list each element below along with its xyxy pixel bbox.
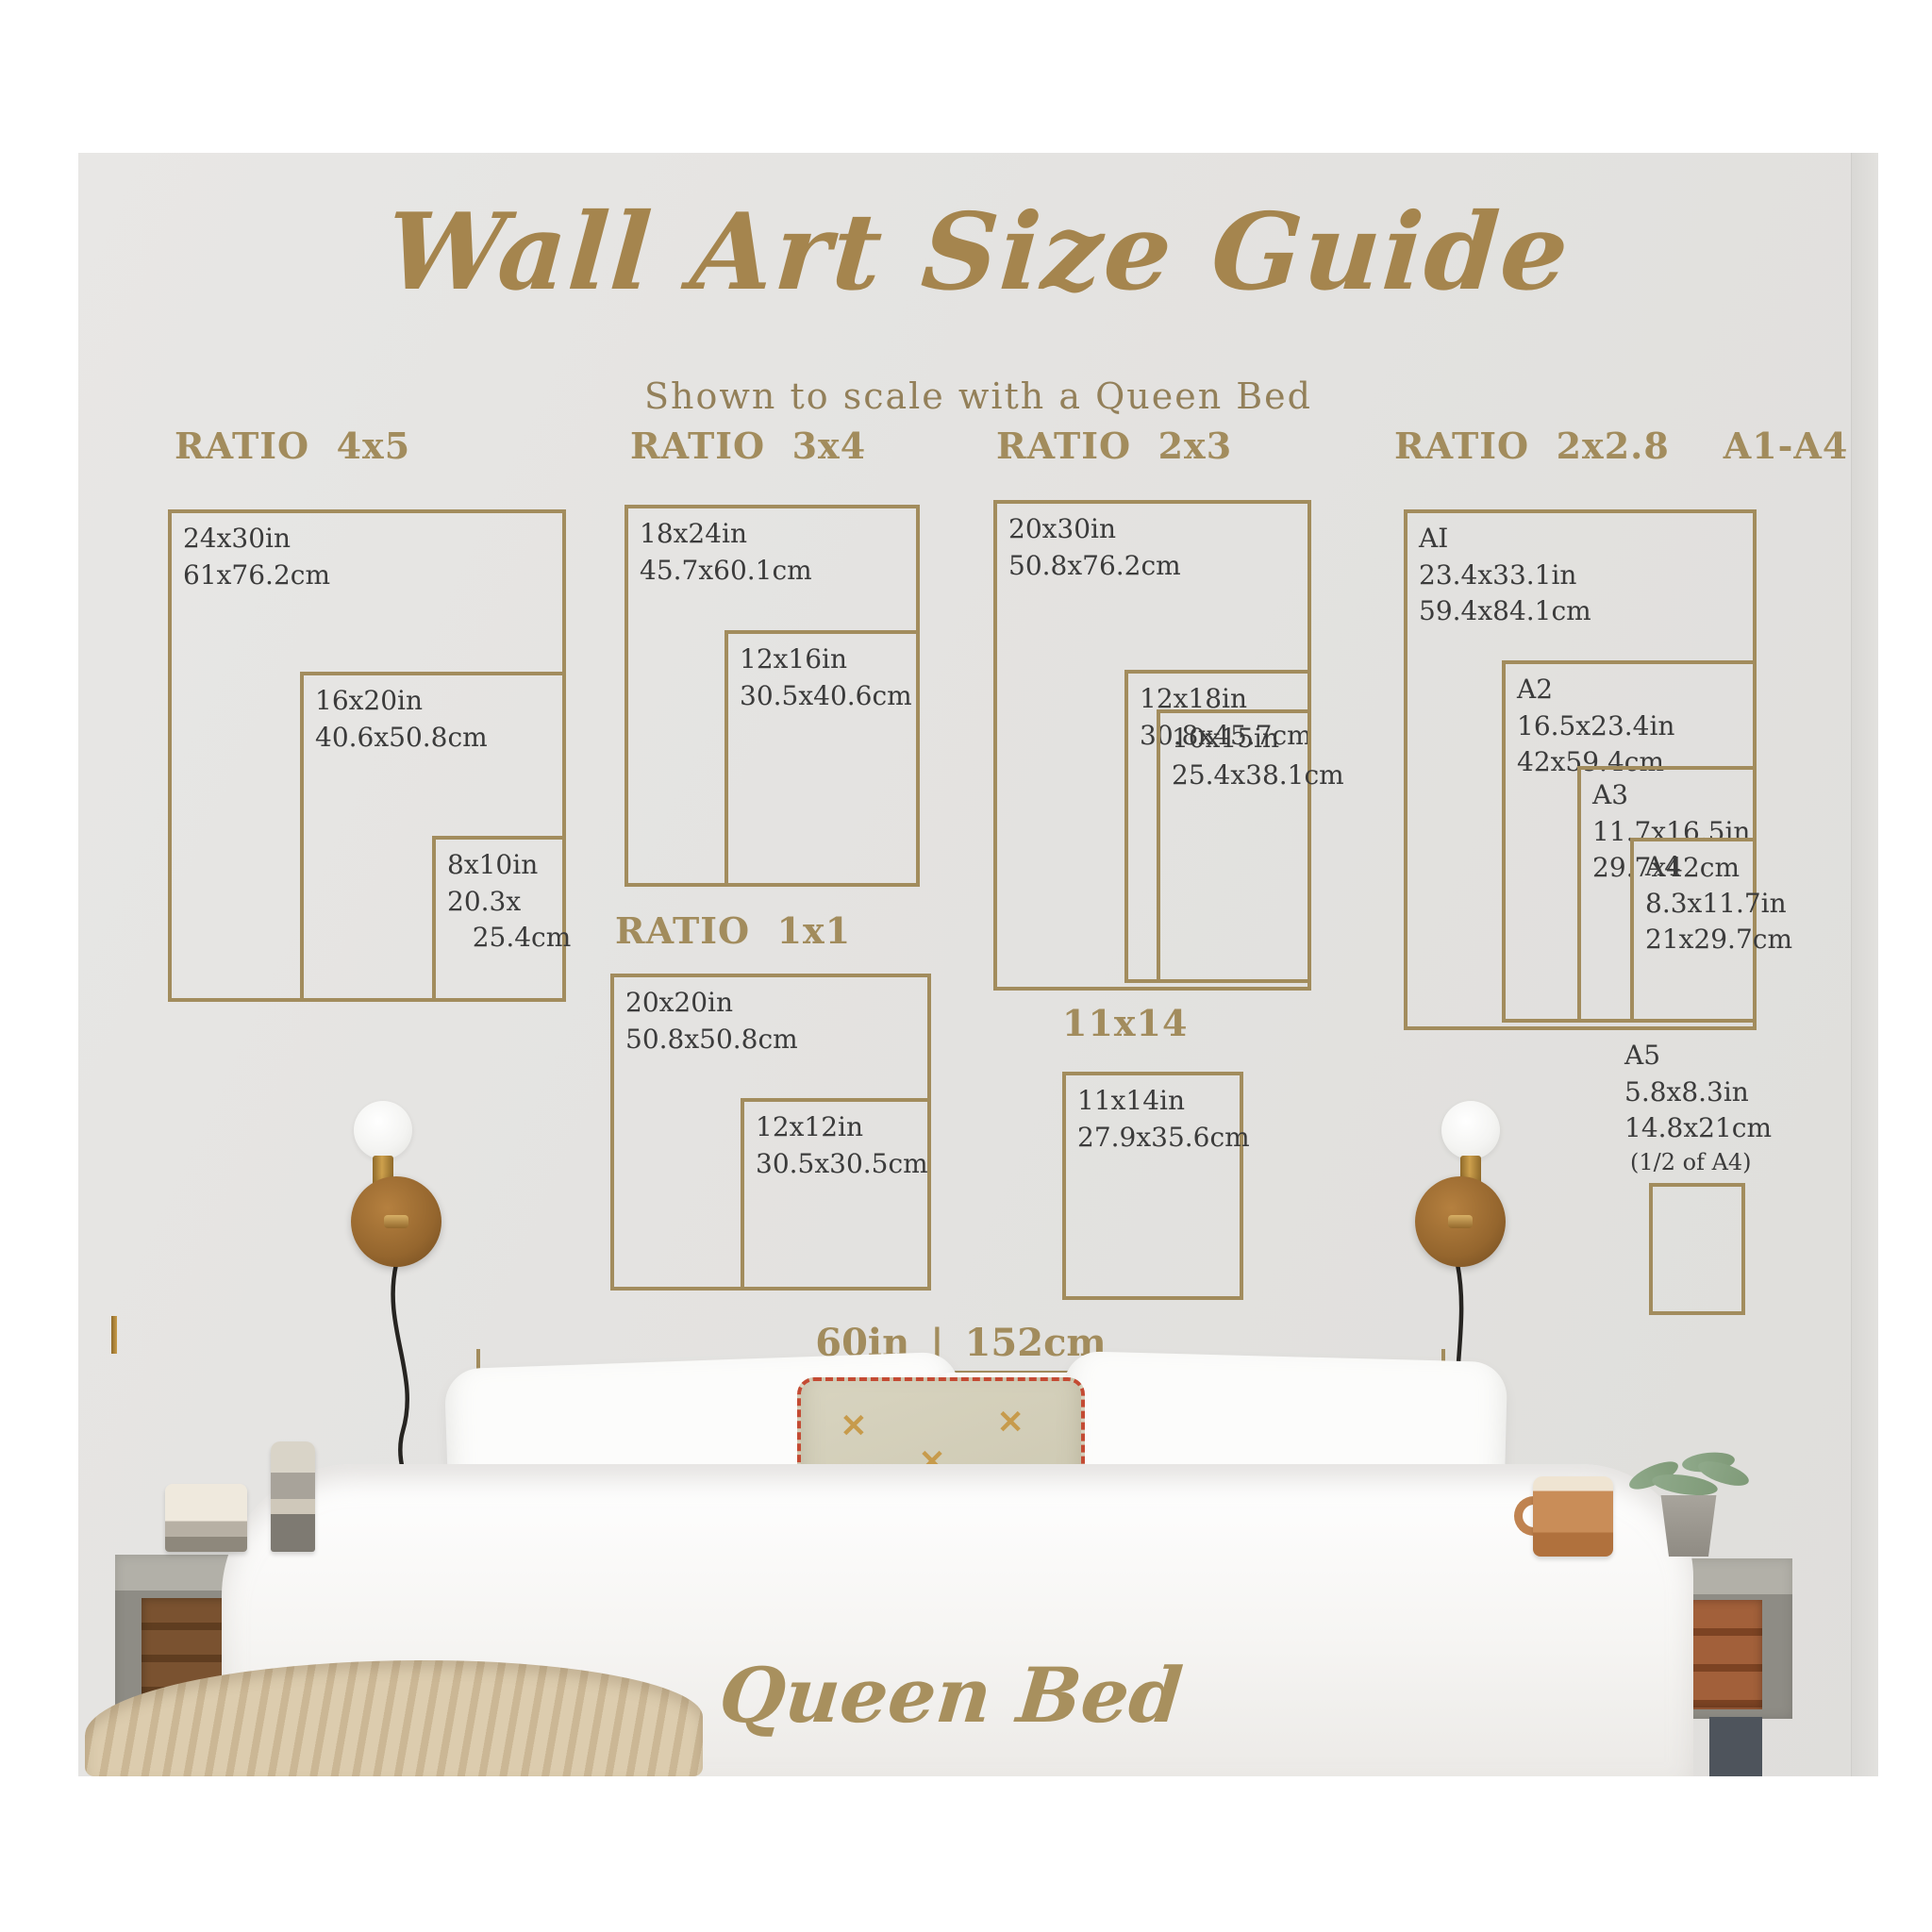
size-label-a5: A5 5.8x8.3in 14.8x21cm	[1624, 1038, 1772, 1147]
size-label-11x14: 11x14in 27.9x35.6cm	[1077, 1083, 1455, 1156]
embroidery-motif-icon: ✕	[841, 1407, 868, 1445]
size-label-24x30: 24x30in 61x76.2cm	[183, 521, 560, 593]
size-box-a4: A4 8.3x11.7in 21x29.7cm	[1630, 838, 1757, 1023]
right-sconce-knob	[1448, 1215, 1473, 1228]
size-label-a4: A4 8.3x11.7in 21x29.7cm	[1645, 849, 1806, 958]
ceramic-cup	[165, 1484, 247, 1552]
size-label-8x10: 8x10in 20.3x 25.4cm	[447, 847, 598, 957]
size-note-a5: (1/2 of A4)	[1630, 1149, 1752, 1175]
size-label-18x24: 18x24in 45.7x60.1cm	[640, 516, 1017, 589]
right-sconce-bulb-icon	[1441, 1101, 1500, 1159]
group-heading-2x3: RATIO 2x3	[996, 425, 1232, 467]
striped-candle	[271, 1441, 315, 1552]
coffee-mug	[1533, 1476, 1613, 1557]
group-heading-11x14: 11x14	[1062, 1002, 1188, 1044]
size-box-a5	[1649, 1183, 1745, 1315]
page-title: Wall Art Size Guide	[78, 191, 1878, 314]
page: Wall Art Size Guide Shown to scale with …	[0, 0, 1932, 1932]
left-sconce-bulb-icon	[354, 1101, 412, 1159]
group-heading-3x4: RATIO 3x4	[630, 425, 866, 467]
group-heading-a-series: RATIO 2x2.8 A1-A4	[1394, 425, 1848, 467]
size-box-12x12: 12x12in 30.5x30.5cm	[741, 1098, 931, 1291]
size-label-20x20: 20x20in 50.8x50.8cm	[625, 985, 1003, 1058]
size-box-10x15: 10x15in 25.4x38.1cm	[1157, 709, 1311, 983]
size-label-20x30: 20x30in 50.8x76.2cm	[1008, 511, 1386, 584]
left-sconce-knob	[384, 1215, 408, 1228]
embroidery-motif-icon: ✕	[997, 1404, 1024, 1441]
page-subtitle: Shown to scale with a Queen Bed	[78, 375, 1878, 417]
size-box-12x16: 12x16in 30.5x40.6cm	[724, 630, 920, 887]
group-heading-4x5: RATIO 4x5	[175, 425, 410, 467]
size-label-a1: AI 23.4x33.1in 59.4x84.1cm	[1419, 521, 1796, 630]
size-label-a2: A2 16.5x23.4in 42x59.4cm	[1517, 672, 1878, 781]
left-wall-rod	[111, 1316, 117, 1354]
group-heading-1x1: RATIO 1x1	[615, 909, 851, 952]
queen-bed-label: Queen Bed	[78, 1651, 1827, 1740]
bedroom-photo: Wall Art Size Guide Shown to scale with …	[78, 153, 1878, 1776]
size-box-8x10: 8x10in 20.3x 25.4cm	[432, 836, 566, 1002]
size-box-11x14: 11x14in 27.9x35.6cm	[1062, 1072, 1243, 1300]
